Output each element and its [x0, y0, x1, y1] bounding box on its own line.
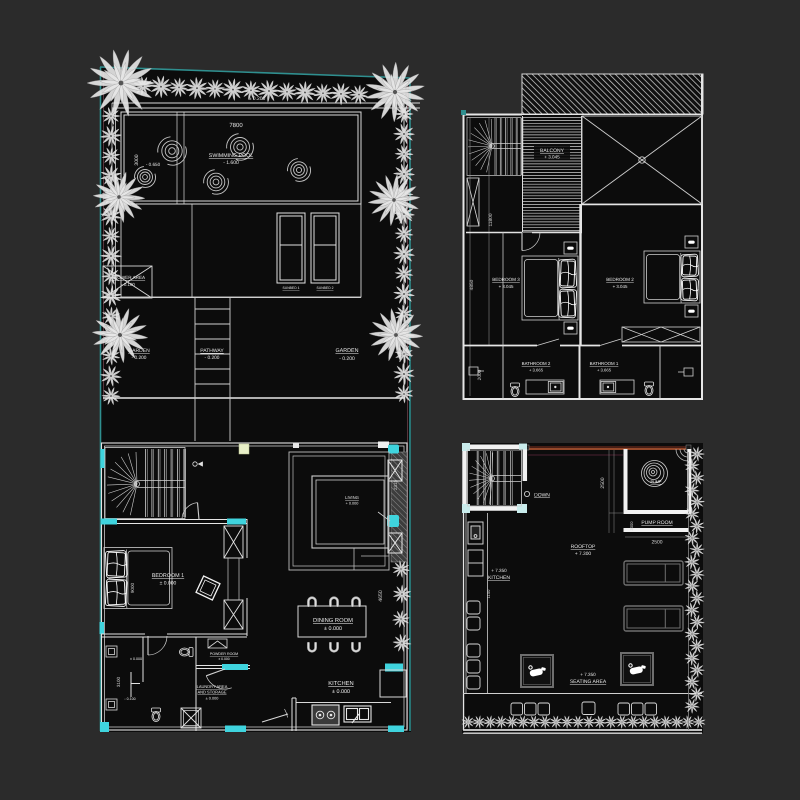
svg-text:+ 7.350: + 7.350: [580, 672, 596, 677]
svg-text:KITCHEN: KITCHEN: [328, 680, 353, 687]
svg-text:BEDROOM 1: BEDROOM 1: [152, 573, 184, 579]
svg-text:± 0.000: ± 0.000: [324, 626, 342, 632]
svg-text:BALCONY: BALCONY: [540, 148, 565, 154]
svg-text:+ 3.045: + 3.045: [613, 284, 628, 289]
svg-text:- 0.100: - 0.100: [121, 282, 135, 287]
svg-text:9000: 9000: [130, 582, 135, 593]
svg-text:- 1.600: - 1.600: [223, 160, 239, 166]
svg-text:SWIMMING POOL: SWIMMING POOL: [209, 153, 253, 159]
svg-text:+ 3.665: + 3.665: [597, 368, 612, 373]
svg-text:SEATING AREA: SEATING AREA: [570, 679, 607, 685]
svg-text:2315: 2315: [393, 479, 398, 490]
svg-text:BATHROOM 1: BATHROOM 1: [590, 361, 619, 366]
svg-text:2500: 2500: [600, 477, 606, 488]
svg-text:ROOFTOP: ROOFTOP: [571, 544, 596, 550]
svg-text:3000: 3000: [134, 154, 140, 165]
svg-text:± 0.000: ± 0.000: [206, 697, 219, 701]
svg-text:+ 3.665: + 3.665: [529, 368, 544, 373]
svg-text:- 0.100: - 0.100: [124, 697, 135, 701]
svg-text:+ 3.045: + 3.045: [544, 155, 560, 160]
svg-text:GARDEN: GARDEN: [335, 348, 358, 354]
svg-text:LIVING: LIVING: [345, 495, 359, 500]
svg-text:SUNBED 1: SUNBED 1: [283, 286, 300, 290]
svg-text:2500: 2500: [651, 540, 662, 546]
svg-text:4650: 4650: [378, 590, 384, 602]
svg-text:+ 7.300: + 7.300: [575, 551, 591, 557]
svg-text:BEDROOM 3: BEDROOM 3: [492, 277, 520, 282]
svg-text:1100: 1100: [486, 589, 491, 598]
svg-text:± 0.000: ± 0.000: [130, 657, 142, 661]
svg-text:3100: 3100: [116, 676, 121, 687]
svg-text:AND STORAGE: AND STORAGE: [197, 690, 226, 695]
svg-text:3000: 3000: [629, 521, 634, 531]
svg-text:± 0.000: ± 0.000: [160, 581, 177, 587]
svg-text:7800: 7800: [229, 122, 243, 129]
svg-text:DINING ROOM: DINING ROOM: [313, 617, 353, 624]
svg-text:PATHWAY: PATHWAY: [200, 348, 224, 354]
svg-text:+ 0.000: + 0.000: [346, 502, 359, 506]
svg-text:- 0.200: - 0.200: [205, 355, 220, 361]
svg-text:± 0.000: ± 0.000: [332, 689, 350, 695]
svg-text:PUMP: PUMP: [651, 480, 662, 484]
svg-text:DOWN: DOWN: [534, 493, 550, 499]
svg-text:BEDROOM 2: BEDROOM 2: [606, 277, 634, 282]
svg-text:POWDER ROOM: POWDER ROOM: [210, 652, 238, 656]
svg-text:+ 7.350: + 7.350: [491, 568, 507, 573]
svg-text:+ 3.045: + 3.045: [499, 284, 514, 289]
svg-text:± 0.000: ± 0.000: [218, 657, 229, 661]
svg-text:11800: 11800: [488, 213, 494, 226]
svg-text:4850: 4850: [469, 279, 475, 290]
svg-text:SUNBED 2: SUNBED 2: [317, 286, 334, 290]
svg-text:- 0.650: - 0.650: [146, 162, 161, 167]
svg-text:KITCHEN: KITCHEN: [488, 575, 510, 581]
svg-text:PUMP ROOM: PUMP ROOM: [641, 520, 672, 526]
svg-text:BATHROOM 2: BATHROOM 2: [522, 361, 551, 366]
svg-text:- 0.200: - 0.200: [339, 356, 355, 362]
